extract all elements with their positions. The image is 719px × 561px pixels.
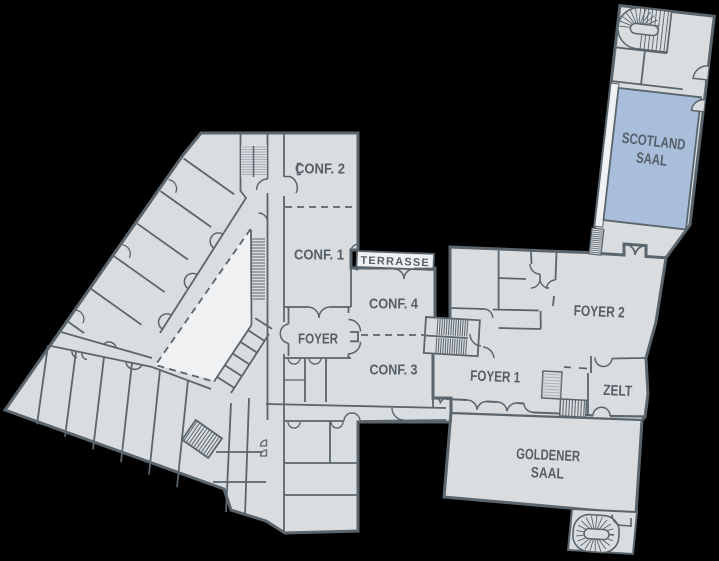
svg-text:CONF. 1: CONF. 1 [294, 247, 344, 264]
svg-text:SAAL: SAAL [531, 464, 565, 482]
svg-text:FOYER 1: FOYER 1 [470, 367, 521, 386]
svg-text:SAAL: SAAL [635, 149, 668, 169]
svg-text:CONF. 4: CONF. 4 [369, 296, 419, 313]
svg-text:GOLDENER: GOLDENER [516, 446, 581, 466]
svg-text:CONF. 2: CONF. 2 [295, 161, 345, 178]
svg-text:ZELT: ZELT [603, 382, 633, 400]
svg-text:FOYER 2: FOYER 2 [573, 302, 625, 321]
svg-text:CONF. 3: CONF. 3 [370, 362, 418, 379]
svg-text:FOYER: FOYER [298, 331, 338, 348]
